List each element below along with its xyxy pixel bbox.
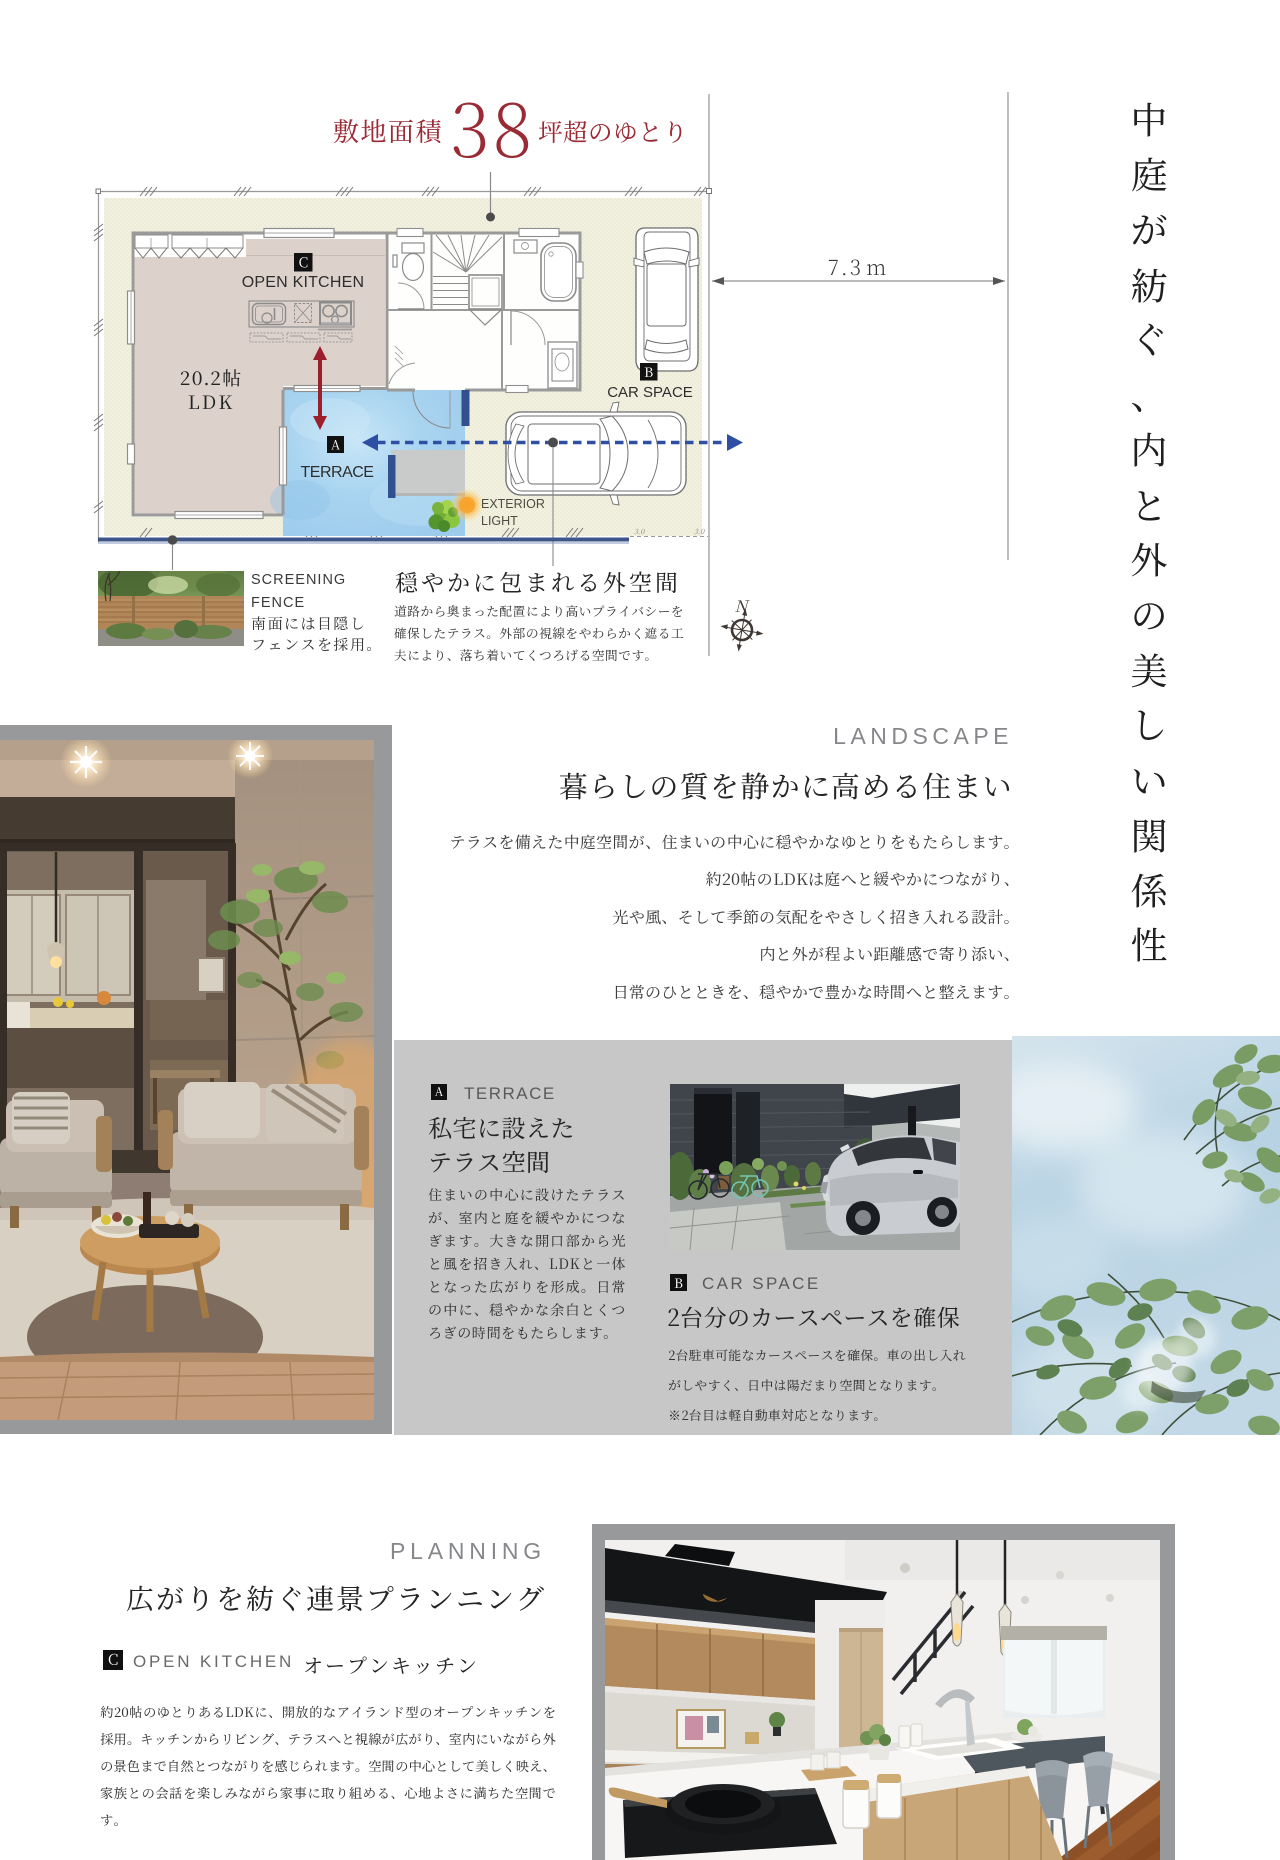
svg-text:EXTERIOR: EXTERIOR bbox=[481, 497, 545, 511]
svg-text:20.2帖: 20.2帖 bbox=[180, 364, 242, 391]
svg-text:坪超のゆとり: 坪超のゆとり bbox=[538, 114, 688, 149]
svg-text:3.0: 3.0 bbox=[634, 527, 645, 537]
svg-text:TERRACE: TERRACE bbox=[301, 464, 374, 481]
svg-text:OPEN KITCHEN: OPEN KITCHEN bbox=[242, 274, 364, 291]
svg-text:3.0: 3.0 bbox=[694, 527, 705, 537]
svg-text:N: N bbox=[735, 594, 751, 617]
svg-text:A: A bbox=[331, 435, 341, 454]
svg-text:7.3m: 7.3m bbox=[828, 252, 889, 282]
svg-text:敷地面積: 敷地面積 bbox=[333, 112, 443, 149]
svg-text:38: 38 bbox=[450, 73, 534, 179]
svg-text:B: B bbox=[644, 361, 653, 381]
svg-text:LIGHT: LIGHT bbox=[481, 514, 518, 528]
svg-text:CAR SPACE: CAR SPACE bbox=[607, 384, 693, 401]
svg-text:LDK: LDK bbox=[188, 388, 235, 415]
svg-text:C: C bbox=[298, 253, 308, 273]
